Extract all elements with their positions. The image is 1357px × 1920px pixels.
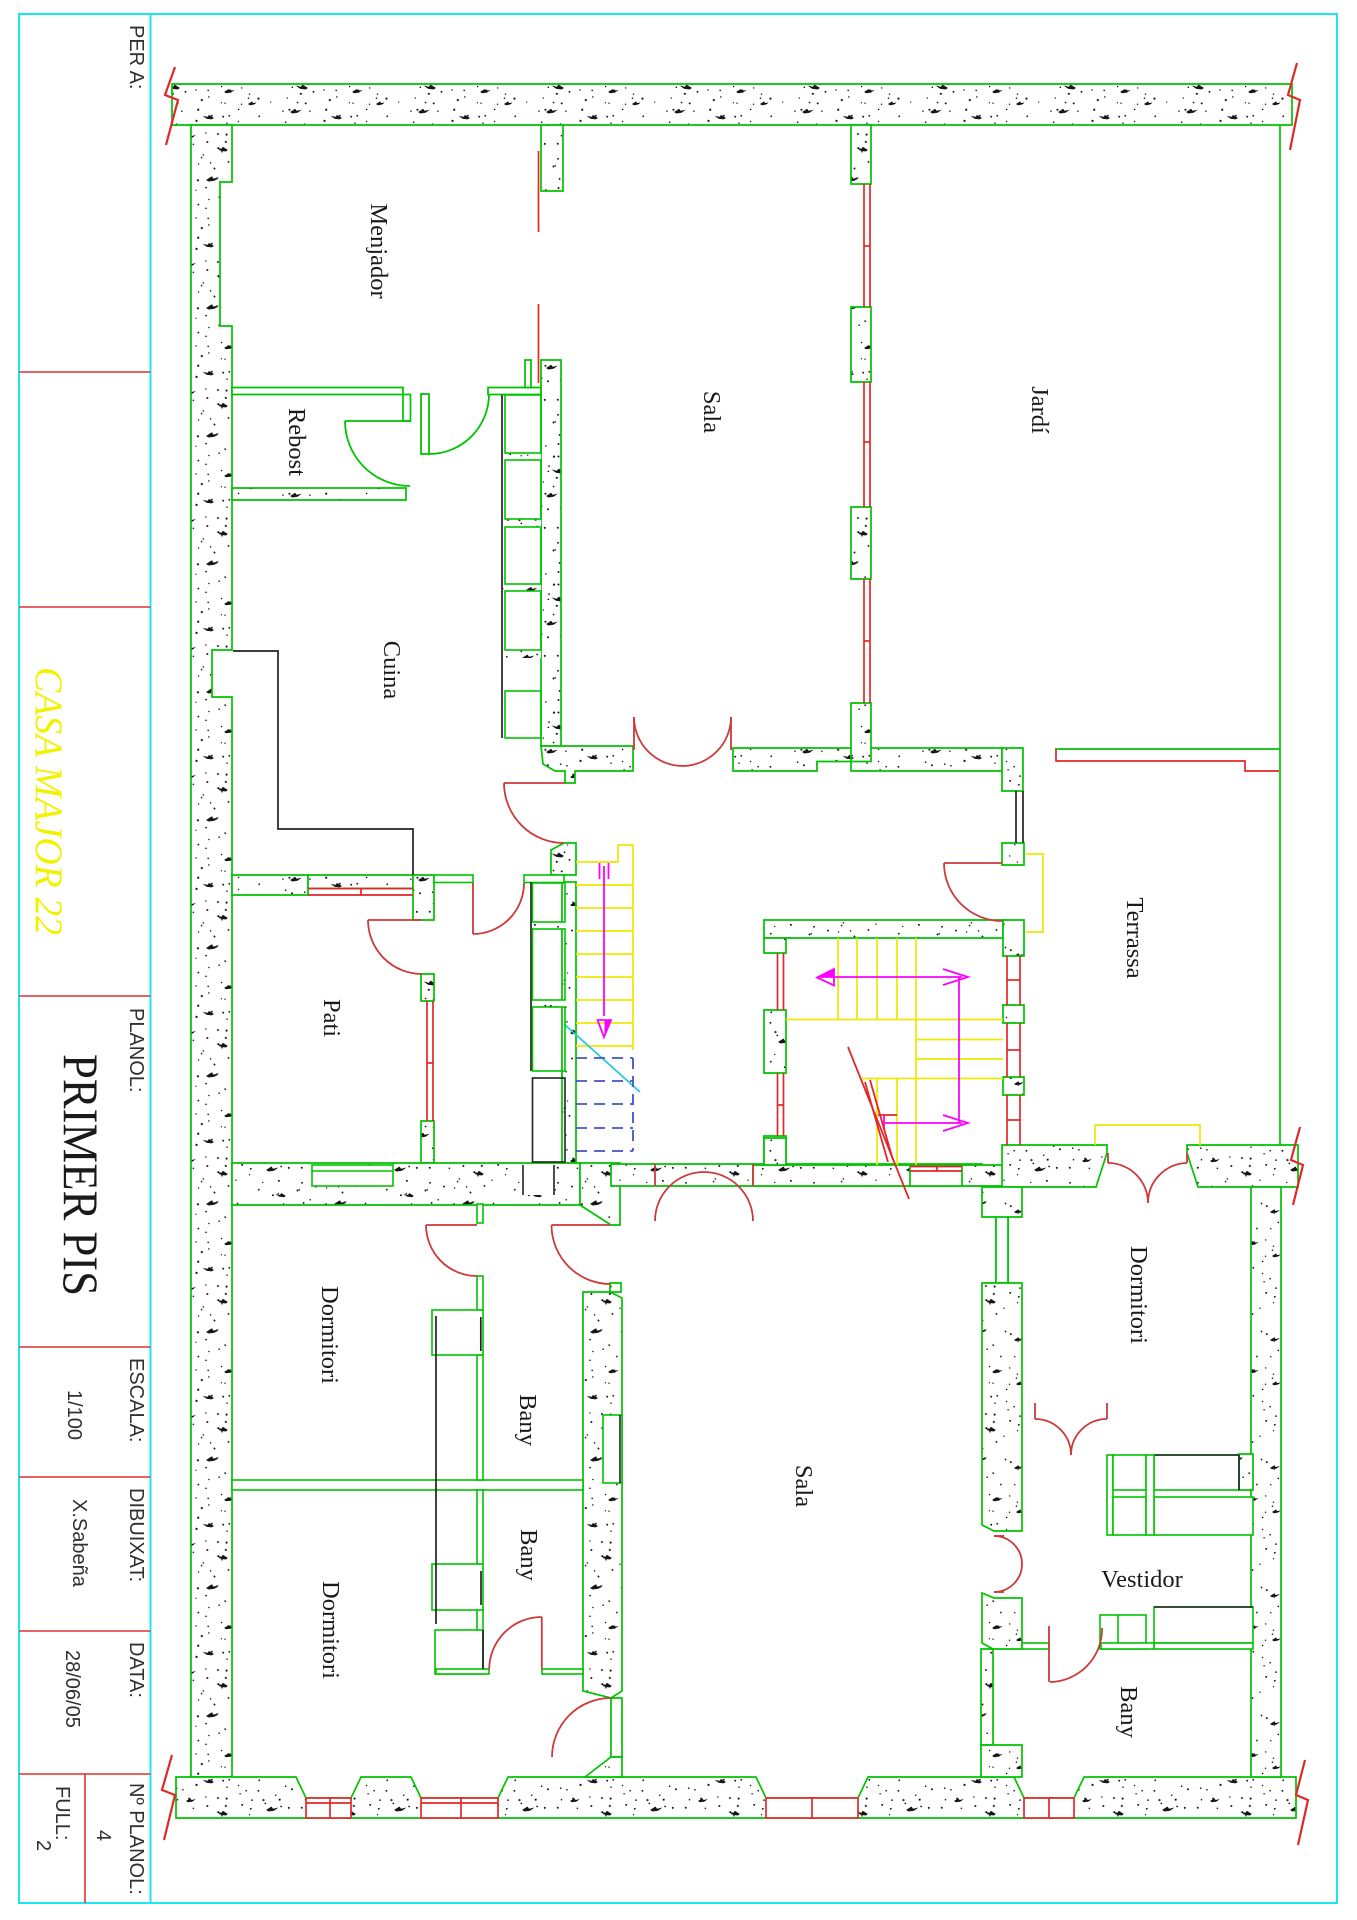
- svg-text:Rebost: Rebost: [283, 408, 310, 476]
- svg-text:ESCALA:: ESCALA:: [125, 1358, 147, 1442]
- svg-text:Dormitori: Dormitori: [317, 1581, 344, 1679]
- svg-text:PRIMER PIS: PRIMER PIS: [53, 1054, 109, 1296]
- svg-text:28/06/05: 28/06/05: [61, 1650, 83, 1728]
- svg-text:Cuina: Cuina: [378, 641, 405, 700]
- svg-text:PLANOL:: PLANOL:: [125, 1008, 147, 1092]
- svg-text:Jardí: Jardí: [1026, 386, 1053, 434]
- svg-text:2: 2: [32, 1840, 54, 1851]
- svg-text:X.Sabeña: X.Sabeña: [68, 1499, 90, 1588]
- svg-text:Dormitori: Dormitori: [316, 1286, 343, 1384]
- svg-text:4: 4: [92, 1830, 114, 1841]
- svg-text:Bany: Bany: [1115, 1686, 1142, 1738]
- svg-text:Terrassa: Terrassa: [1121, 897, 1148, 978]
- svg-text:1/100: 1/100: [63, 1390, 85, 1440]
- svg-text:PER A:: PER A:: [125, 25, 147, 89]
- svg-text:DATA:: DATA:: [125, 1642, 147, 1698]
- svg-text:Sala: Sala: [790, 1465, 817, 1507]
- svg-text:DIBUIXAT:: DIBUIXAT:: [125, 1488, 147, 1582]
- svg-text:Bany: Bany: [514, 1394, 541, 1446]
- svg-text:Vestidor: Vestidor: [1101, 1566, 1183, 1593]
- svg-text:FULL:: FULL:: [51, 1786, 73, 1840]
- svg-text:Dormitori: Dormitori: [1125, 1246, 1152, 1344]
- svg-text:Menjador: Menjador: [365, 203, 392, 298]
- svg-text:Bany: Bany: [515, 1529, 542, 1581]
- svg-text:CASA MAJOR 22: CASA MAJOR 22: [27, 667, 70, 935]
- svg-text:Pati: Pati: [318, 999, 345, 1037]
- svg-text:Nº PLANOL:: Nº PLANOL:: [125, 1783, 147, 1895]
- svg-text:Sala: Sala: [698, 391, 725, 433]
